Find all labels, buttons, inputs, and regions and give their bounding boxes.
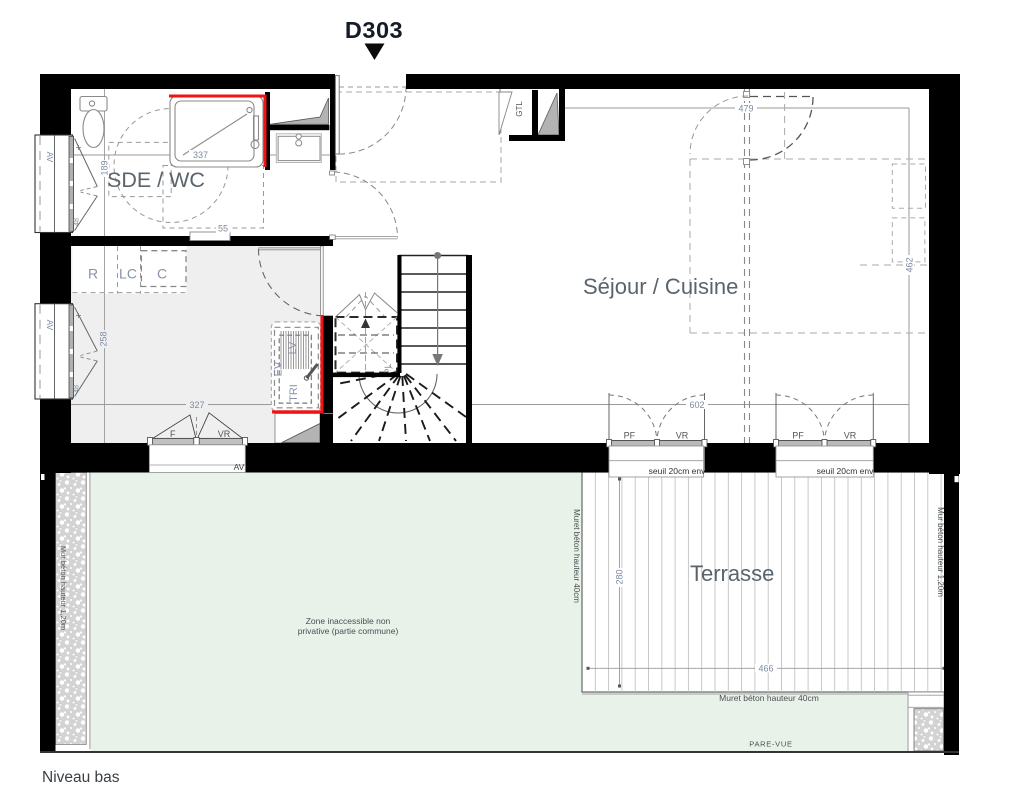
svg-text:PF: PF (792, 431, 804, 441)
svg-text:VR: VR (218, 429, 231, 439)
svg-text:VR: VR (844, 431, 857, 441)
svg-text:LC: LC (119, 266, 137, 282)
svg-text:F: F (170, 429, 176, 439)
svg-text:479: 479 (738, 104, 753, 114)
svg-text:seuil 20cm env: seuil 20cm env (649, 466, 706, 476)
svg-text:R: R (88, 266, 98, 282)
svg-text:602: 602 (689, 400, 704, 410)
svg-text:280: 280 (615, 569, 625, 584)
svg-text:327: 327 (189, 400, 204, 410)
svg-text:Muret béton hauteur 40cm: Muret béton hauteur 40cm (719, 693, 819, 703)
svg-text:48: 48 (74, 218, 81, 226)
svg-text:Zone inaccessible non: Zone inaccessible non (306, 616, 391, 626)
svg-text:AV: AV (45, 320, 55, 331)
svg-text:Mur béton hauteur 1,20m: Mur béton hauteur 1,20m (59, 546, 68, 630)
svg-text:GTL: GTL (515, 101, 524, 117)
svg-text:Terrasse: Terrasse (690, 561, 774, 586)
svg-text:seuil 20cm env: seuil 20cm env (817, 466, 874, 476)
svg-text:258: 258 (99, 331, 109, 346)
svg-text:337: 337 (193, 150, 208, 160)
svg-text:55: 55 (218, 224, 228, 234)
svg-text:Muret béton hauteur 40cm: Muret béton hauteur 40cm (572, 509, 581, 603)
svg-text:48: 48 (74, 385, 81, 393)
svg-text:VR: VR (676, 431, 689, 441)
svg-text:189: 189 (100, 160, 110, 175)
svg-text:TRI: TRI (288, 384, 300, 402)
svg-text:LV: LV (287, 341, 299, 354)
svg-text:privative (partie commune): privative (partie commune) (298, 626, 399, 636)
svg-text:EV: EV (273, 361, 285, 376)
svg-text:466: 466 (758, 664, 773, 674)
svg-text:SDE / WC: SDE / WC (107, 168, 205, 192)
svg-text:PF: PF (624, 431, 636, 441)
svg-text:AV: AV (45, 152, 55, 163)
svg-text:Séjour / Cuisine: Séjour / Cuisine (583, 274, 738, 299)
svg-text:C: C (157, 266, 167, 282)
svg-text:Niveau bas: Niveau bas (42, 769, 120, 786)
svg-text:462: 462 (905, 257, 915, 272)
svg-text:PARE-VUE: PARE-VUE (749, 740, 792, 749)
svg-text:AV: AV (234, 462, 245, 472)
svg-text:D303: D303 (345, 17, 403, 43)
svg-text:Mur béton hauteur 1,20m: Mur béton hauteur 1,20m (936, 507, 945, 597)
